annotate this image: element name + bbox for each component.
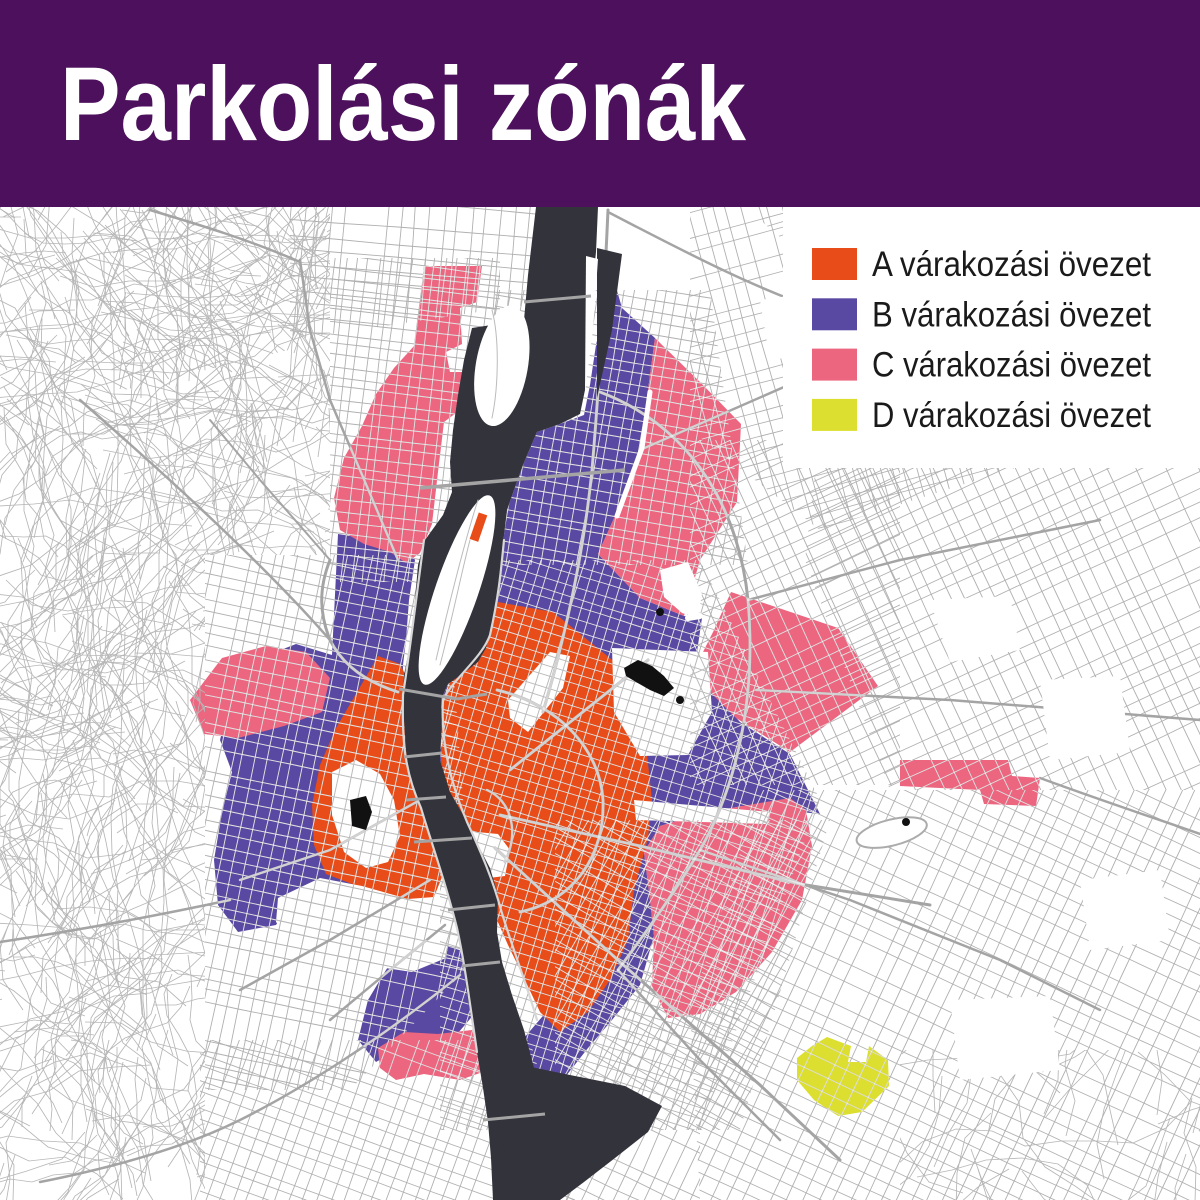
svg-text:A várakozási övezet: A várakozási övezet xyxy=(872,245,1151,284)
svg-text:D várakozási övezet: D várakozási övezet xyxy=(872,396,1151,435)
svg-text:B várakozási övezet: B várakozási övezet xyxy=(872,295,1151,334)
svg-text:Parkolási zónák: Parkolási zónák xyxy=(60,46,747,163)
svg-text:C várakozási övezet: C várakozási övezet xyxy=(872,346,1151,385)
